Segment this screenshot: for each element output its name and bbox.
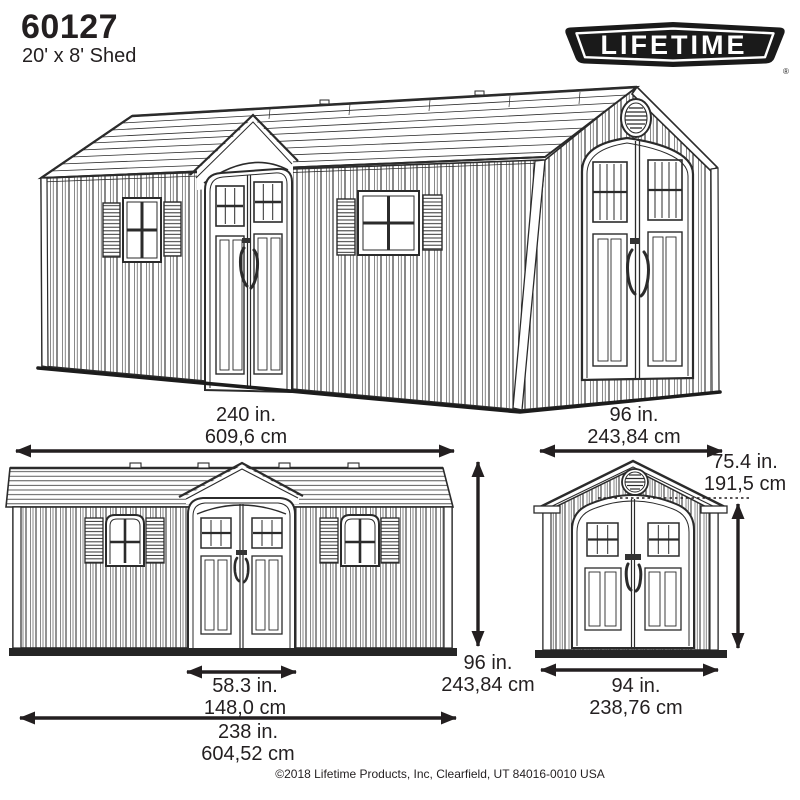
corner-trim	[543, 513, 551, 650]
gable-vent	[622, 469, 648, 495]
perspective-view-drawing	[20, 78, 730, 438]
shutter	[320, 518, 338, 563]
left-edge-trim	[41, 178, 48, 367]
product-size-label: 20' x 8' Shed	[22, 45, 136, 68]
door-hasp	[242, 238, 250, 243]
copyright-notice: ©2018 Lifetime Products, Inc, Clearfield…	[240, 767, 640, 781]
dimension-cm: 243,84 cm	[544, 427, 724, 449]
front-width-dimension-label: 240 in. 609,6 cm	[146, 405, 346, 448]
window-left	[85, 515, 164, 566]
dimension-inches: 96 in.	[408, 653, 568, 675]
dimension-inches: 238 in.	[168, 722, 328, 744]
shutter	[337, 199, 355, 255]
shutter	[423, 195, 442, 250]
dimension-cm: 238,76 cm	[556, 698, 716, 720]
window-right	[320, 515, 399, 566]
end-doors	[582, 138, 693, 380]
gable-vent	[621, 99, 651, 137]
front-doors	[205, 169, 292, 392]
product-dimension-sheet: 60127 20' x 8' Shed LIFETIME ®	[0, 0, 800, 800]
dimension-inches: 96 in.	[544, 405, 724, 427]
front-doors	[188, 498, 295, 650]
registered-mark: ®	[783, 67, 789, 76]
corner-trim	[13, 507, 21, 648]
door-width-dimension-label: 58.3 in. 148,0 cm	[165, 676, 325, 719]
shutter	[146, 518, 164, 563]
door-window-right	[648, 523, 679, 556]
dimension-cm: 604,52 cm	[168, 744, 328, 766]
door-hasp	[625, 554, 641, 560]
eave-height-dimension-label: 75.4 in. 191,5 cm	[667, 452, 800, 495]
front-door-window-left	[216, 186, 244, 226]
logo-brand-text: LIFETIME	[601, 30, 748, 60]
corner-trim	[444, 507, 452, 648]
door-hasp	[630, 238, 640, 244]
front-elevation-drawing	[5, 452, 465, 662]
lifetime-logo: LIFETIME ®	[558, 18, 792, 76]
dimension-cm: 609,6 cm	[146, 427, 346, 449]
shutter	[103, 203, 120, 257]
peak-height-dimension-label: 96 in. 243,84 cm	[408, 653, 568, 696]
corner-trim	[710, 513, 718, 650]
front-window-right	[337, 191, 442, 255]
front-base-width-dimension-label: 238 in. 604,52 cm	[168, 722, 328, 765]
door-window-left	[587, 523, 618, 556]
shutter	[381, 518, 399, 563]
dimension-cm: 243,84 cm	[408, 675, 568, 697]
right-edge-trim	[711, 168, 719, 392]
model-number: 60127	[21, 8, 118, 47]
shutter	[85, 518, 103, 563]
dimension-inches: 75.4 in.	[667, 452, 800, 474]
door-hasp	[236, 550, 247, 555]
door-window-right	[252, 518, 282, 548]
end-doors	[572, 495, 694, 648]
shutter	[164, 202, 181, 256]
end-width-dimension-label: 96 in. 243,84 cm	[544, 405, 724, 448]
dimension-cm: 191,5 cm	[667, 474, 800, 496]
foundation	[9, 648, 457, 656]
front-door-window-right	[254, 182, 282, 222]
end-base-width-dimension-label: 94 in. 238,76 cm	[556, 676, 716, 719]
door-window-left	[201, 518, 231, 548]
dimension-inches: 94 in.	[556, 676, 716, 698]
front-window-left	[103, 198, 181, 262]
dimension-inches: 58.3 in.	[165, 676, 325, 698]
dimension-inches: 240 in.	[146, 405, 346, 427]
dimension-cm: 148,0 cm	[165, 698, 325, 720]
